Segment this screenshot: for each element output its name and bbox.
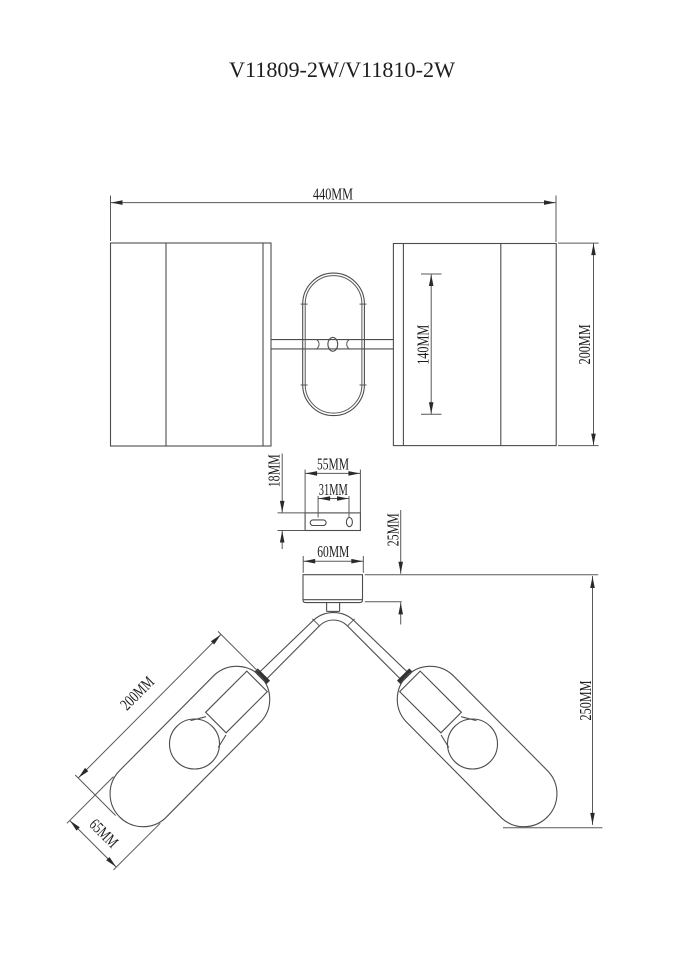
svg-text:18MM: 18MM [264, 454, 283, 487]
svg-text:440MM: 440MM [313, 185, 353, 204]
svg-text:200MM: 200MM [575, 324, 594, 364]
svg-text:250MM: 250MM [576, 680, 595, 720]
svg-text:V11809-2W/V11810-2W: V11809-2W/V11810-2W [229, 57, 455, 82]
svg-text:60MM: 60MM [317, 542, 349, 561]
svg-text:25MM: 25MM [383, 513, 402, 546]
svg-text:55MM: 55MM [317, 454, 349, 473]
svg-text:140MM: 140MM [414, 325, 433, 365]
svg-text:31MM: 31MM [319, 480, 348, 499]
